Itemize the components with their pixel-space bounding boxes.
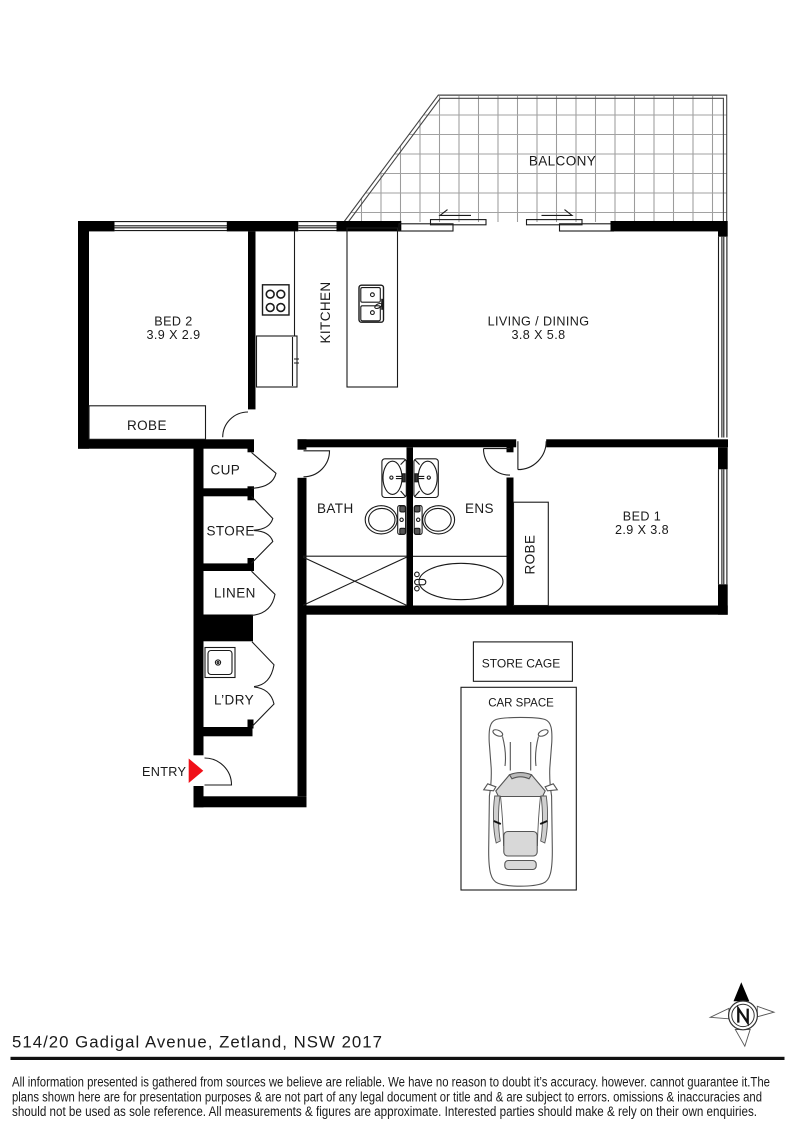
svg-text:BED 1: BED 1 (623, 510, 661, 524)
svg-text:LINEN: LINEN (214, 586, 256, 601)
svg-text:STORE CAGE: STORE CAGE (482, 657, 560, 671)
svg-text:LIVING / DINING: LIVING / DINING (488, 315, 590, 329)
svg-text:CAR SPACE: CAR SPACE (488, 698, 554, 710)
svg-text:ENS: ENS (465, 501, 494, 516)
svg-text:BED 2: BED 2 (154, 315, 192, 329)
svg-text:STORE: STORE (207, 524, 255, 539)
svg-text:ROBE: ROBE (523, 535, 538, 575)
svg-text:L’DRY: L’DRY (214, 693, 254, 708)
svg-text:should not be used as sole ref: should not be used as sole reference. Al… (12, 1104, 757, 1119)
svg-text:KITCHEN: KITCHEN (318, 281, 333, 343)
svg-text:All information presented is g: All information presented is gathered fr… (12, 1075, 770, 1090)
svg-text:2.9 X 3.8: 2.9 X 3.8 (615, 523, 669, 537)
svg-text:BATH: BATH (317, 501, 354, 516)
svg-text:CUP: CUP (211, 463, 241, 478)
svg-text:plans shown here are for prese: plans shown here are for presentation pu… (12, 1089, 762, 1104)
svg-text:ENTRY: ENTRY (142, 765, 187, 779)
svg-text:3.8 X 5.8: 3.8 X 5.8 (511, 328, 565, 342)
svg-text:3.9 X 2.9: 3.9 X 2.9 (146, 328, 200, 342)
svg-text:ROBE: ROBE (127, 418, 167, 433)
svg-text:BALCONY: BALCONY (529, 154, 596, 169)
svg-text:514/20 Gadigal Avenue, Zetland: 514/20 Gadigal Avenue, Zetland, NSW 2017 (12, 1033, 382, 1052)
